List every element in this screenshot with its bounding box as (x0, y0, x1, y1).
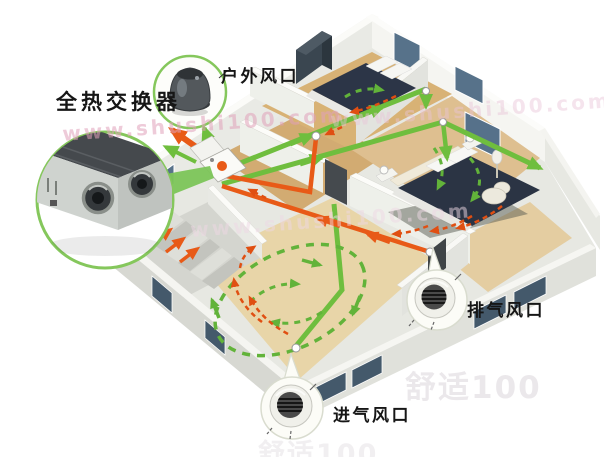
ventilation-system-diagram: www.shushi100.com www.shushi100.com www.… (0, 0, 604, 457)
exhaust-vent-label: 排气风口 (467, 296, 545, 321)
lamp (380, 166, 388, 174)
heat-exchanger-callout (36, 128, 173, 268)
heat-exchanger-label: 全热交换器 (56, 86, 181, 116)
intake-vent-label: 进气风口 (333, 401, 411, 426)
house-illustration (0, 0, 604, 457)
armchair (482, 188, 506, 204)
duct-fitting (423, 88, 430, 95)
floor-lamp (492, 150, 502, 164)
duct-fitting (440, 119, 447, 126)
duct-fitting (312, 132, 320, 140)
outdoor-vent-label: 户外风口 (221, 62, 299, 87)
duct-fitting (292, 344, 300, 352)
